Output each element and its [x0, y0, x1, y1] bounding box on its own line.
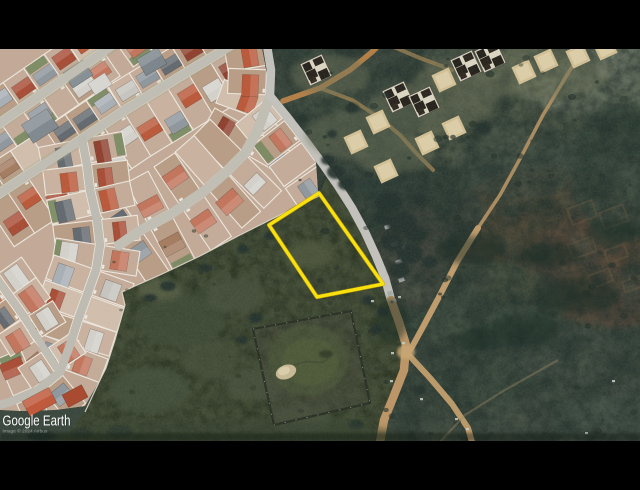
- svg-text:Google Earth: Google Earth: [3, 414, 71, 430]
- svg-text:Image © 2024 Airbus: Image © 2024 Airbus: [3, 428, 48, 435]
